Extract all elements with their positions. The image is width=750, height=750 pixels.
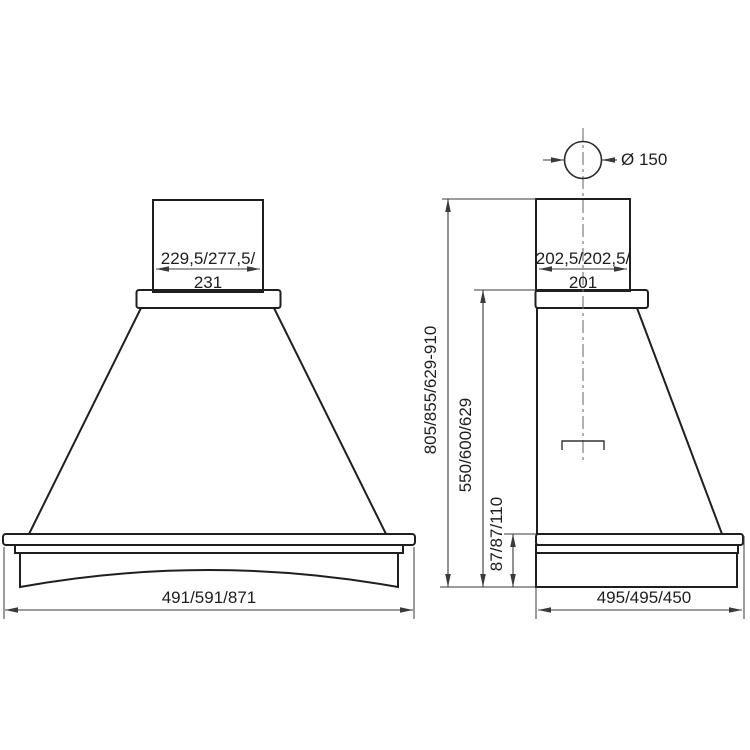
front-body-width-label: 491/591/871 — [162, 588, 257, 607]
side-top-trim — [536, 290, 649, 308]
front-chimney-width-dimension: 229,5/277,5/ 231 — [156, 249, 260, 292]
side-chimney-depth-label-line2: 201 — [569, 273, 597, 292]
front-body-width-dimension: 491/591/871 — [4, 547, 414, 619]
front-chimney-width-label-line2: 231 — [194, 273, 222, 292]
front-chimney-width-label-line1: 229,5/277,5/ — [161, 249, 256, 268]
front-hood-body — [29, 308, 386, 534]
front-bottom-lip — [3, 534, 415, 545]
side-body-depth-dimension: 495/495/450 — [536, 536, 744, 619]
side-body-depth-label: 495/495/450 — [597, 588, 692, 607]
side-view: Ø 150 202,5/202,5/ 201 805/855/629-910 5… — [421, 128, 744, 619]
side-chimney-depth-label-line1: 202,5/202,5/ — [536, 249, 631, 268]
side-chimney-depth-dimension: 202,5/202,5/ 201 — [536, 249, 631, 292]
front-molding — [15, 545, 403, 553]
drawing-canvas: 229,5/277,5/ 231 491/591/871 Ø 150 — [0, 0, 750, 750]
height-dimensions: 805/855/629-910 550/600/629 87/87/110 — [421, 199, 536, 587]
base-height-label: 87/87/110 — [487, 497, 506, 571]
side-bottom-lip — [536, 534, 743, 545]
side-hood-body — [537, 308, 722, 534]
side-base — [536, 553, 737, 587]
front-arched-base — [20, 553, 398, 587]
total-height-label: 805/855/629-910 — [421, 326, 440, 455]
front-view: 229,5/277,5/ 231 491/591/871 — [3, 200, 415, 619]
duct-diameter-dimension: Ø 150 — [543, 142, 667, 179]
hood-height-label: 550/600/629 — [456, 398, 475, 493]
side-molding — [536, 545, 738, 553]
duct-diameter-label: Ø 150 — [621, 150, 667, 169]
technical-drawing: 229,5/277,5/ 231 491/591/871 Ø 150 — [0, 0, 750, 750]
